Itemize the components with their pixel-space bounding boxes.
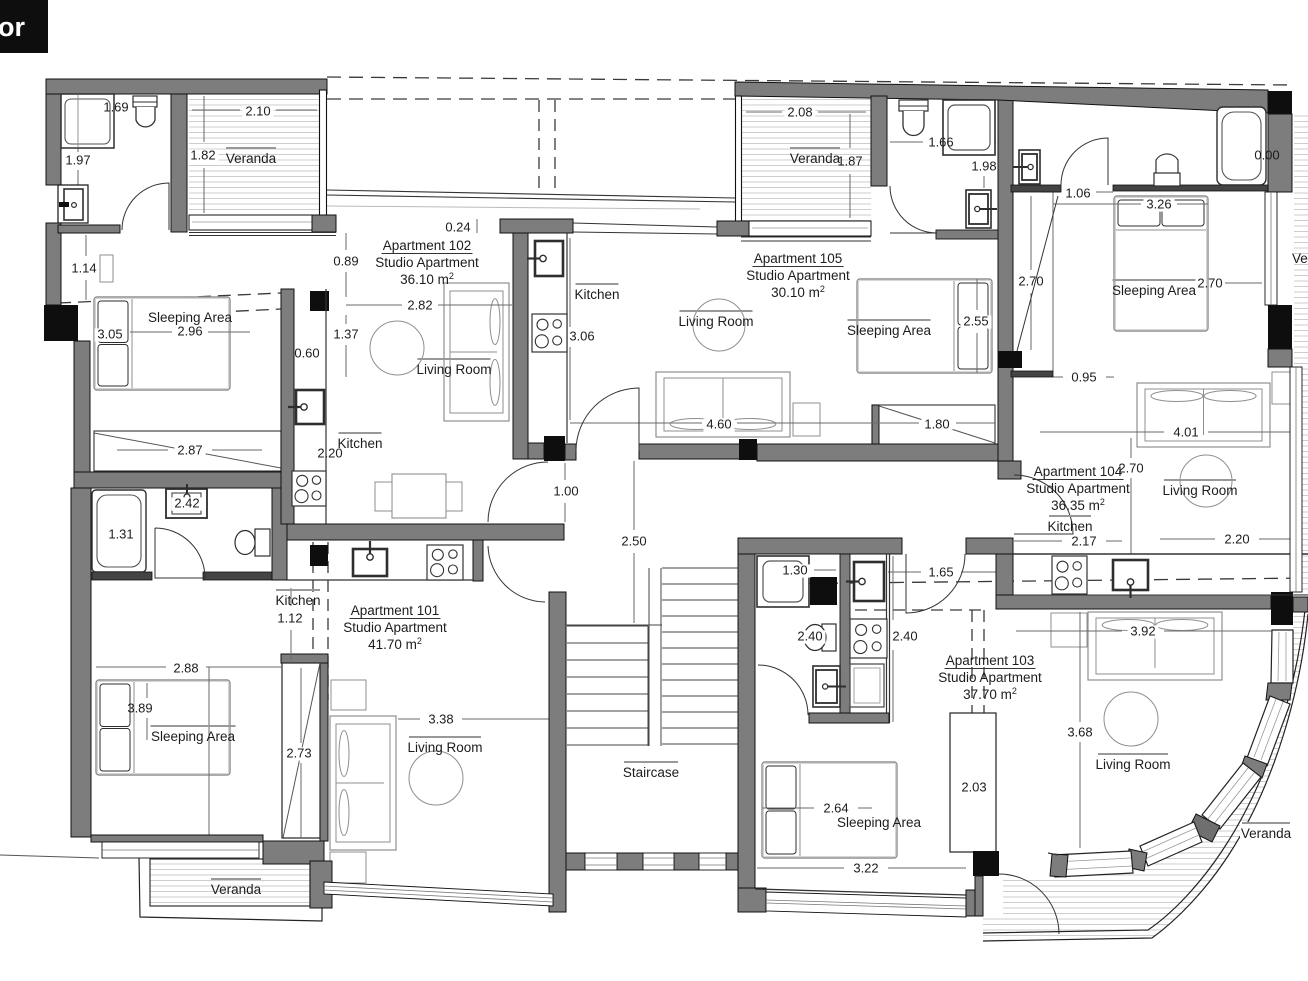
svg-text:37.70 m2: 37.70 m2: [963, 686, 1017, 702]
svg-text:Apartment 104: Apartment 104: [1034, 464, 1123, 479]
svg-text:2.40: 2.40: [797, 629, 822, 644]
svg-text:2.50: 2.50: [621, 534, 646, 549]
svg-text:1.80: 1.80: [924, 417, 949, 432]
svg-text:Veranda: Veranda: [790, 151, 841, 166]
svg-text:Staircase: Staircase: [623, 765, 679, 780]
svg-text:36.35 m2: 36.35 m2: [1051, 497, 1105, 513]
svg-text:Sleeping Area: Sleeping Area: [847, 323, 932, 338]
svg-text:2.70: 2.70: [1118, 461, 1143, 476]
svg-text:1.69: 1.69: [103, 100, 128, 115]
svg-text:3.68: 3.68: [1067, 725, 1092, 740]
svg-text:1.97: 1.97: [65, 153, 90, 168]
svg-text:1.37: 1.37: [333, 327, 358, 342]
svg-text:Studio Apartment: Studio Apartment: [938, 670, 1042, 685]
svg-text:3.22: 3.22: [853, 861, 878, 876]
svg-text:1.98: 1.98: [971, 159, 996, 174]
svg-text:Veranda: Veranda: [1292, 251, 1308, 266]
svg-text:Studio Apartment: Studio Apartment: [375, 255, 479, 270]
svg-text:2.17: 2.17: [1071, 534, 1096, 549]
svg-text:Kitchen: Kitchen: [337, 436, 382, 451]
svg-text:1.30: 1.30: [782, 563, 807, 578]
svg-text:Kitchen: Kitchen: [574, 287, 619, 302]
svg-text:2.03: 2.03: [961, 780, 986, 795]
svg-text:Sleeping Area: Sleeping Area: [1112, 283, 1197, 298]
svg-text:3.26: 3.26: [1146, 197, 1171, 212]
svg-text:Veranda: Veranda: [211, 882, 262, 897]
svg-text:2.70: 2.70: [1197, 276, 1222, 291]
svg-text:0.24: 0.24: [445, 220, 470, 235]
svg-text:2.42: 2.42: [174, 496, 199, 511]
svg-text:1.12: 1.12: [277, 611, 302, 626]
svg-text:30.10 m2: 30.10 m2: [771, 284, 825, 300]
svg-text:Veranda: Veranda: [1241, 826, 1292, 841]
svg-text:Kitchen: Kitchen: [275, 593, 320, 608]
svg-text:1.00: 1.00: [553, 484, 578, 499]
svg-text:0.60: 0.60: [294, 346, 319, 361]
svg-text:4.01: 4.01: [1173, 425, 1198, 440]
svg-text:2.40: 2.40: [892, 629, 917, 644]
svg-text:2.10: 2.10: [245, 104, 270, 119]
svg-text:2.20: 2.20: [317, 446, 342, 461]
svg-text:Living Room: Living Room: [678, 314, 753, 329]
svg-text:Apartment 103: Apartment 103: [946, 653, 1035, 668]
svg-text:2.55: 2.55: [963, 314, 988, 329]
svg-text:3.92: 3.92: [1130, 624, 1155, 639]
svg-text:0.95: 0.95: [1071, 370, 1096, 385]
svg-text:3.89: 3.89: [127, 701, 152, 716]
svg-text:or: or: [0, 12, 25, 42]
svg-text:2.20: 2.20: [1224, 532, 1249, 547]
svg-text:0.00: 0.00: [1254, 148, 1279, 163]
svg-text:2.96: 2.96: [177, 324, 202, 339]
svg-text:Kitchen: Kitchen: [1047, 519, 1092, 534]
svg-text:1.87: 1.87: [837, 154, 862, 169]
svg-text:3.06: 3.06: [569, 329, 594, 344]
svg-text:2.64: 2.64: [823, 801, 848, 816]
svg-text:Apartment 102: Apartment 102: [383, 238, 472, 253]
svg-text:1.06: 1.06: [1065, 186, 1090, 201]
svg-text:1.82: 1.82: [190, 148, 215, 163]
svg-text:Veranda: Veranda: [226, 151, 277, 166]
svg-text:2.82: 2.82: [407, 298, 432, 313]
svg-text:1.66: 1.66: [928, 135, 953, 150]
svg-text:2.70: 2.70: [1018, 274, 1043, 289]
svg-text:3.05: 3.05: [97, 327, 122, 342]
svg-text:0.89: 0.89: [333, 254, 358, 269]
svg-text:1.65: 1.65: [928, 565, 953, 580]
svg-text:Studio Apartment: Studio Apartment: [343, 620, 447, 635]
svg-text:Living Room: Living Room: [1162, 483, 1237, 498]
svg-text:2.88: 2.88: [173, 661, 198, 676]
svg-text:Living Room: Living Room: [416, 362, 491, 377]
svg-text:41.70 m2: 41.70 m2: [368, 636, 422, 652]
svg-text:1.31: 1.31: [108, 527, 133, 542]
svg-text:Living Room: Living Room: [407, 740, 482, 755]
svg-text:3.38: 3.38: [428, 712, 453, 727]
svg-text:Sleeping Area: Sleeping Area: [837, 815, 922, 830]
svg-text:4.60: 4.60: [706, 417, 731, 432]
svg-text:Studio Apartment: Studio Apartment: [1026, 481, 1130, 496]
svg-text:Studio Apartment: Studio Apartment: [746, 268, 850, 283]
svg-text:1.14: 1.14: [71, 261, 96, 276]
svg-text:36.10 m2: 36.10 m2: [400, 271, 454, 287]
svg-text:2.87: 2.87: [177, 443, 202, 458]
svg-text:Apartment 101: Apartment 101: [351, 603, 440, 618]
svg-text:Apartment 105: Apartment 105: [754, 251, 843, 266]
svg-text:Sleeping Area: Sleeping Area: [151, 729, 236, 744]
svg-text:Living Room: Living Room: [1095, 757, 1170, 772]
svg-text:2.08: 2.08: [787, 105, 812, 120]
svg-text:2.73: 2.73: [286, 746, 311, 761]
